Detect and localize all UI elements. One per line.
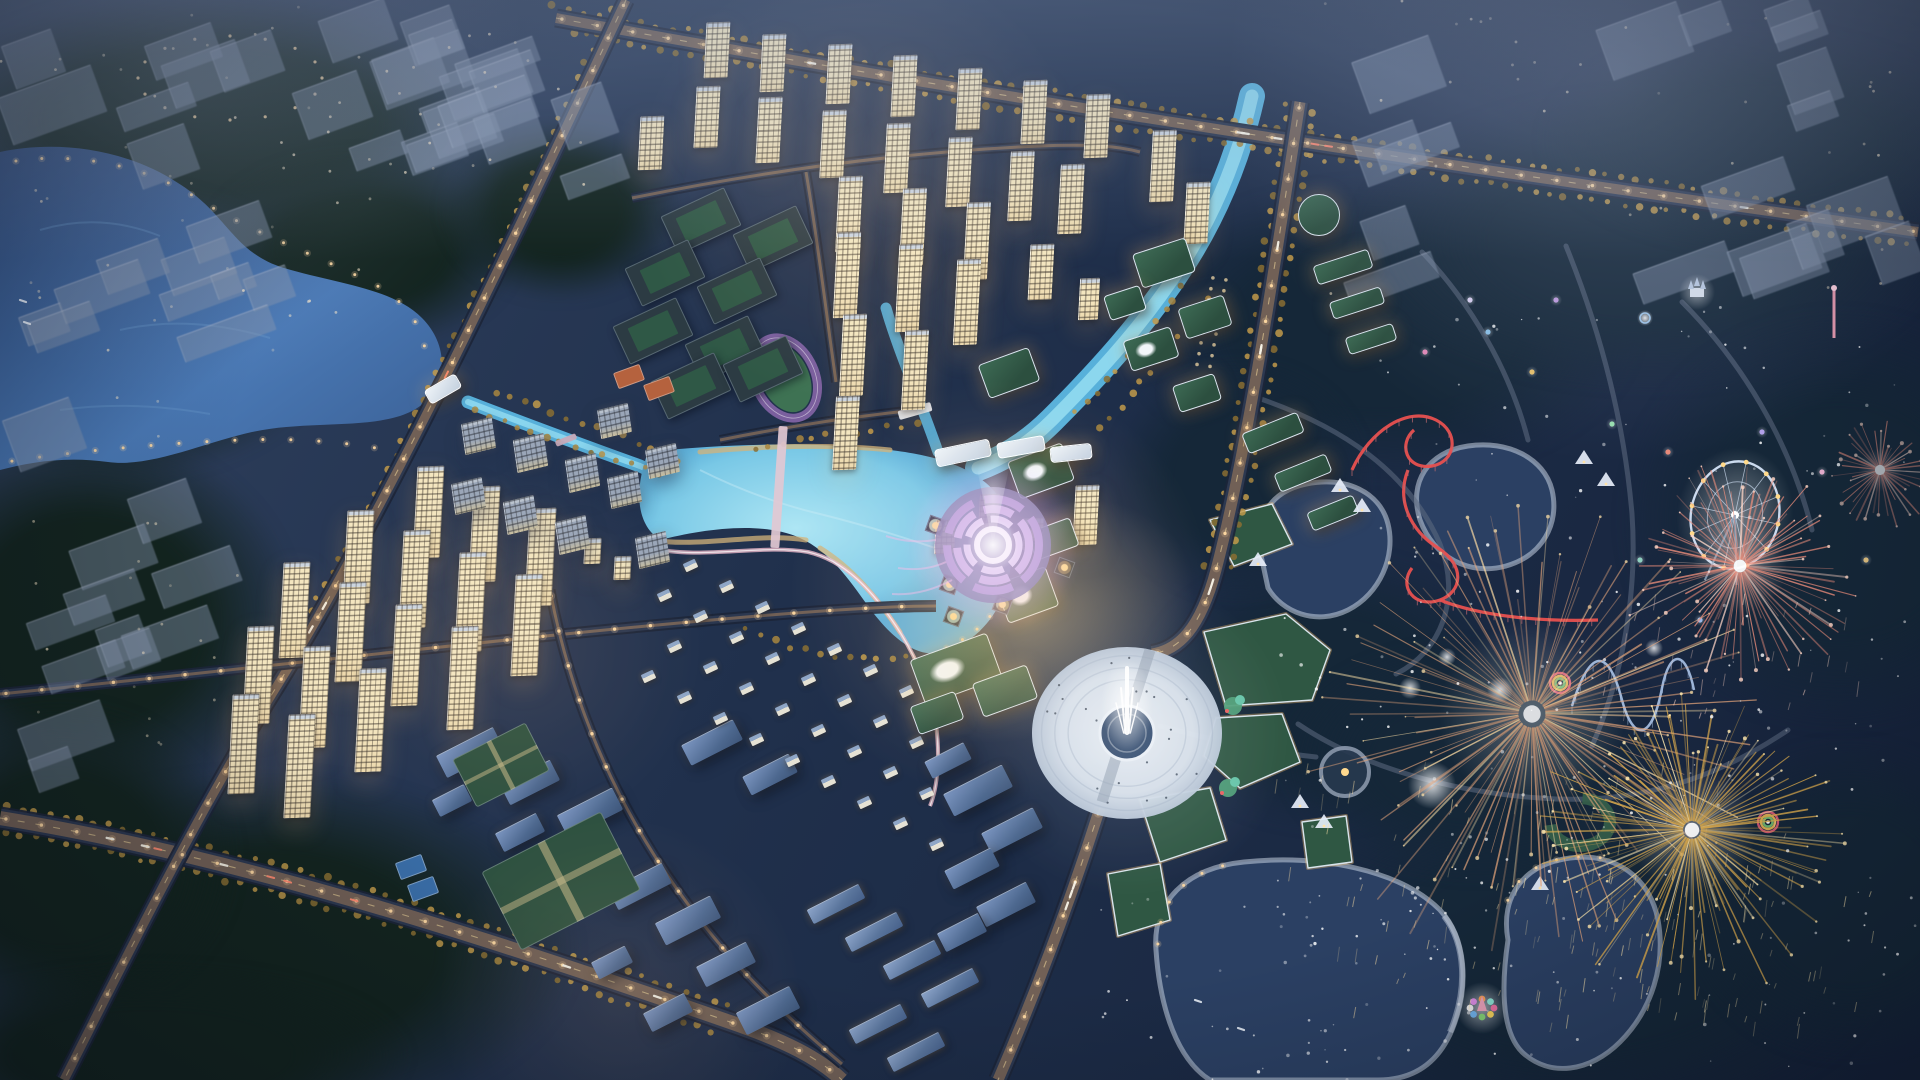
sparkle xyxy=(1603,765,1605,767)
firework-spark xyxy=(1662,531,1665,534)
firework-spark xyxy=(1546,515,1550,519)
sparkle xyxy=(1432,913,1433,914)
sparkle xyxy=(1432,552,1434,554)
firework-rain xyxy=(1606,925,1608,931)
sparkle xyxy=(1914,924,1917,927)
sparkle xyxy=(1444,958,1446,960)
firework-spark xyxy=(1625,560,1628,563)
firework-spark xyxy=(1468,547,1470,549)
sparkle xyxy=(1602,443,1605,446)
distant-light xyxy=(146,734,149,737)
distant-light xyxy=(385,70,388,73)
topiary-accent xyxy=(1225,709,1229,713)
firework-spark xyxy=(1824,781,1827,784)
firework-rain xyxy=(1798,654,1800,666)
firework-rain xyxy=(1659,998,1661,1013)
firework-rain xyxy=(1791,876,1793,889)
firework-rain xyxy=(1496,883,1498,890)
sparkle xyxy=(1361,718,1363,720)
firework-spark xyxy=(1542,830,1546,834)
firework-rain xyxy=(1640,934,1642,947)
firework-rain xyxy=(1397,979,1399,984)
firework-rain xyxy=(1714,678,1716,684)
sparkle xyxy=(1664,484,1667,487)
firework-spark xyxy=(1713,709,1717,713)
distant-light xyxy=(107,349,110,352)
firework-spark xyxy=(1606,880,1609,883)
sparkle xyxy=(1545,415,1548,418)
firework-spark xyxy=(1743,736,1747,740)
sparkle xyxy=(1315,687,1318,690)
sparkle xyxy=(1475,479,1477,481)
distant-light xyxy=(170,305,173,308)
sparkle xyxy=(1903,620,1906,623)
sparkle xyxy=(1761,653,1765,657)
firework-rain xyxy=(1354,1007,1356,1018)
sparkle xyxy=(1321,928,1323,930)
firework-rain xyxy=(1386,921,1388,932)
sparkle xyxy=(1309,901,1311,903)
firework-spark xyxy=(1896,525,1898,527)
sparkle xyxy=(1680,720,1682,722)
firework-spark xyxy=(1552,810,1554,812)
sparkle xyxy=(1449,813,1450,814)
firework-rain xyxy=(1613,967,1615,976)
firework-spark xyxy=(1555,851,1558,854)
firework-spark xyxy=(1806,846,1808,848)
distant-light xyxy=(1827,286,1830,289)
sparkle xyxy=(1603,782,1605,784)
firework-core xyxy=(1734,560,1747,573)
firework-rain xyxy=(1664,912,1666,922)
boat xyxy=(1195,1000,1201,1002)
sparkle xyxy=(1546,661,1548,663)
distant-light xyxy=(1515,41,1518,44)
sparkle xyxy=(1536,811,1539,814)
sparkle xyxy=(1454,868,1456,870)
distant-light xyxy=(199,639,202,642)
firework-spark xyxy=(1815,774,1817,776)
sparkle xyxy=(1520,616,1522,618)
sparkle xyxy=(1619,977,1621,979)
firework-spark xyxy=(1756,773,1759,776)
plaza-people xyxy=(1128,657,1130,659)
sparkle xyxy=(1562,917,1565,920)
distant-light xyxy=(412,66,415,69)
sparkle xyxy=(1458,384,1460,386)
sparkle xyxy=(1479,591,1481,593)
sparkle xyxy=(1728,774,1731,777)
firework-spark xyxy=(1588,925,1592,929)
sparkle xyxy=(1537,317,1539,319)
amusement-ride xyxy=(1529,369,1534,374)
sparkle xyxy=(1486,543,1489,546)
firework-rain xyxy=(1596,949,1598,957)
firework-rain xyxy=(1533,937,1535,949)
fountain-glow xyxy=(1101,659,1153,751)
sparkle xyxy=(1709,330,1712,333)
sparkle xyxy=(1501,750,1505,754)
sparkle xyxy=(1451,833,1454,836)
amusement-ride xyxy=(1819,469,1824,474)
firework-rain xyxy=(1592,866,1594,883)
plaza-people xyxy=(1176,773,1178,775)
firework-spark xyxy=(1405,716,1407,718)
firework-spark xyxy=(1720,763,1722,765)
sparkle xyxy=(1509,892,1511,894)
sparkle xyxy=(1344,1049,1346,1051)
tent-light xyxy=(1339,489,1342,492)
sparkle xyxy=(1404,953,1406,955)
firework-spark xyxy=(1608,778,1610,780)
tent-light xyxy=(1299,805,1302,808)
firework-ray xyxy=(1740,573,1741,680)
distant-light xyxy=(1533,61,1536,64)
sparkle xyxy=(1579,489,1582,492)
firework-rain xyxy=(1451,799,1453,813)
firework-rain xyxy=(1516,882,1518,895)
firework-spark xyxy=(1688,477,1690,479)
firework-spark xyxy=(1850,480,1852,482)
sparkle xyxy=(1632,663,1634,665)
sparkle xyxy=(1428,644,1430,646)
firework-spark xyxy=(1664,611,1668,615)
firework-spark xyxy=(1646,933,1649,936)
firework-rain xyxy=(1745,1016,1747,1022)
firework-spark xyxy=(1622,741,1625,744)
plaza-people xyxy=(1110,662,1112,664)
tent-light xyxy=(1323,825,1326,828)
sparkle xyxy=(1611,987,1613,989)
sparkle xyxy=(1687,335,1689,337)
distant-light xyxy=(1877,154,1880,157)
distant-light xyxy=(181,219,184,222)
carousel-candy-light xyxy=(1470,1011,1477,1018)
sparkle xyxy=(1485,831,1488,834)
distant-light xyxy=(358,56,361,59)
firework-rain xyxy=(1820,967,1822,979)
amusement-ride xyxy=(1485,329,1490,334)
distant-light xyxy=(472,164,475,167)
firework-spark xyxy=(1559,553,1561,555)
sparkle xyxy=(1858,892,1859,893)
sparkle xyxy=(1465,877,1467,879)
distant-light xyxy=(30,281,33,284)
distant-light xyxy=(1828,151,1831,154)
firework-rain xyxy=(1810,672,1812,682)
sparkle xyxy=(1277,880,1279,882)
sparkle xyxy=(1426,1007,1428,1009)
firework-rain xyxy=(1696,930,1698,940)
firework-spark xyxy=(1805,485,1808,488)
plaza-people xyxy=(1195,773,1197,775)
distant-light xyxy=(124,146,127,149)
distant-light xyxy=(1543,110,1546,113)
distant-light xyxy=(448,46,451,49)
firework-rain xyxy=(1498,962,1500,970)
distant-light xyxy=(156,400,159,403)
firework-spark xyxy=(1843,841,1847,845)
firework-spark xyxy=(1790,953,1793,956)
distant-light xyxy=(327,131,330,134)
distant-light xyxy=(37,290,40,293)
firework-spark xyxy=(1475,856,1479,860)
firework-spark xyxy=(1689,906,1693,910)
firework-spark xyxy=(1430,751,1433,754)
firework-spark xyxy=(1707,746,1709,748)
firework-spark xyxy=(1634,737,1637,740)
firework-rain xyxy=(1587,903,1589,910)
sparkle xyxy=(1669,781,1672,784)
sparkle xyxy=(1884,946,1886,948)
firework-spark xyxy=(1563,880,1566,883)
firework-rain xyxy=(1321,794,1323,811)
firework-spark xyxy=(1854,454,1857,457)
distant-light xyxy=(271,27,274,30)
sparkle xyxy=(1433,945,1436,948)
sparkle xyxy=(1763,367,1765,369)
firework-spark xyxy=(1802,638,1805,641)
sparkle xyxy=(1847,939,1849,941)
distant-light xyxy=(307,106,310,109)
sparkle xyxy=(1333,1024,1334,1025)
sparkle xyxy=(1713,621,1715,623)
firework-spark xyxy=(1695,599,1699,603)
sparkle xyxy=(1457,682,1460,685)
firework-spark xyxy=(1657,616,1660,619)
firework-rain xyxy=(1803,690,1805,695)
firework-spark xyxy=(1669,961,1673,965)
firework-rain xyxy=(1761,933,1763,939)
firework-spark xyxy=(1694,634,1697,637)
distant-light xyxy=(120,68,123,71)
firework-spark xyxy=(1752,916,1755,919)
firework-spark xyxy=(1722,485,1724,487)
sparkle xyxy=(1284,617,1286,619)
firework-spark xyxy=(1877,513,1881,517)
sparkle xyxy=(1310,944,1313,947)
firework-spark xyxy=(1329,671,1331,673)
plaza-people xyxy=(1096,787,1098,789)
plaza-people xyxy=(1146,761,1148,763)
sparkle xyxy=(1409,910,1411,912)
distant-light xyxy=(1731,162,1734,165)
firework-spark xyxy=(1451,866,1453,868)
tent-light xyxy=(1361,509,1364,512)
sparkle xyxy=(1782,901,1785,904)
firework-rain xyxy=(1628,938,1630,950)
distant-light xyxy=(213,656,216,659)
distant-light xyxy=(280,141,283,144)
firework-spark xyxy=(1704,668,1708,672)
sparkle xyxy=(1850,1062,1853,1065)
sparkle xyxy=(1731,779,1733,781)
firework-spark xyxy=(1841,833,1843,835)
firework-spark xyxy=(1849,434,1851,436)
sparkle xyxy=(1590,1064,1592,1066)
sparkle xyxy=(1759,442,1762,445)
firework-rain xyxy=(1538,936,1540,942)
sparkle xyxy=(1447,978,1450,981)
firework-rain xyxy=(1855,1002,1857,1012)
firework-rain xyxy=(1713,690,1715,696)
distant-light xyxy=(190,182,193,185)
sparkle xyxy=(1516,590,1519,593)
firework-spark xyxy=(1704,638,1707,641)
sparkle xyxy=(1530,1053,1533,1056)
distant-light xyxy=(432,167,435,170)
firework-rain xyxy=(1337,796,1339,808)
sparkle xyxy=(1881,658,1883,660)
firework-rain xyxy=(1845,662,1847,673)
distant-light xyxy=(292,153,295,156)
distant-light xyxy=(1879,282,1882,285)
firework-spark xyxy=(1439,552,1442,555)
distant-light xyxy=(129,577,132,580)
sparkle xyxy=(1858,346,1860,348)
firework-spark xyxy=(1904,488,1907,491)
firework-rain xyxy=(1572,946,1574,954)
firework-spark xyxy=(1780,769,1782,771)
sparkle xyxy=(1855,723,1856,724)
firework-spark xyxy=(1705,960,1707,962)
distant-light xyxy=(1629,213,1632,216)
sparkle xyxy=(1578,692,1580,694)
distant-light xyxy=(1869,85,1872,88)
firework-spark xyxy=(1564,847,1568,851)
firework-spark xyxy=(1690,535,1693,538)
distant-light xyxy=(1727,23,1730,26)
sparkle xyxy=(1823,435,1825,437)
firework-spark xyxy=(1466,516,1470,520)
distant-light xyxy=(190,14,193,17)
sparkle xyxy=(1785,729,1787,731)
firework-spark xyxy=(1728,730,1731,733)
sparkle xyxy=(1313,942,1316,945)
sparkle xyxy=(1869,725,1872,728)
firework-rain xyxy=(1361,884,1363,891)
distant-light xyxy=(437,123,440,126)
sparkle xyxy=(1710,715,1713,718)
distant-light xyxy=(169,175,172,178)
plaza-people xyxy=(1118,782,1120,784)
distant-light xyxy=(272,349,275,352)
sparkle xyxy=(1380,655,1383,658)
distant-light xyxy=(1324,2,1327,5)
sparkle xyxy=(1865,404,1868,407)
boat xyxy=(24,322,30,324)
distant-light xyxy=(1455,23,1458,26)
sparkle xyxy=(1414,556,1416,558)
sparkle xyxy=(1503,406,1506,409)
sparkle xyxy=(1488,681,1490,683)
sparkle xyxy=(1848,391,1850,393)
firework-spark xyxy=(1825,599,1827,601)
firework-spark xyxy=(1697,750,1700,753)
sparkle xyxy=(1262,1068,1264,1070)
amusement-ride xyxy=(1467,297,1472,302)
distant-light xyxy=(46,648,49,651)
firework-rain xyxy=(1546,894,1548,904)
firework-spark xyxy=(1763,753,1765,755)
firework-spark xyxy=(1700,465,1702,467)
sparkle xyxy=(1677,914,1679,916)
firework-rain xyxy=(1675,1012,1677,1020)
sparkle xyxy=(1625,424,1626,425)
firework-rain xyxy=(1772,651,1774,661)
firework-spark xyxy=(1860,423,1863,426)
sparkle xyxy=(1601,601,1603,603)
sparkle xyxy=(1146,898,1149,901)
distant-light xyxy=(494,85,497,88)
sparkle xyxy=(1710,1060,1711,1061)
firework-rain xyxy=(1353,897,1355,907)
sparkle xyxy=(1764,1004,1766,1006)
distant-light xyxy=(282,167,285,170)
firework-rain xyxy=(1641,984,1643,999)
sparkle xyxy=(1573,776,1576,779)
distant-light xyxy=(1744,101,1747,104)
sparkle xyxy=(1709,994,1711,996)
sparkle xyxy=(1411,891,1415,895)
sparkle xyxy=(1277,906,1279,908)
distant-light xyxy=(335,311,338,314)
firework-rain xyxy=(1844,896,1846,907)
firework-rain xyxy=(1403,973,1405,978)
sparkle xyxy=(1257,1070,1260,1073)
firework-spark xyxy=(1403,845,1405,847)
firework-rain xyxy=(1348,792,1350,804)
distant-light xyxy=(389,163,392,166)
sparkle xyxy=(1531,756,1534,759)
firework-rain xyxy=(1703,999,1705,1007)
sparkle xyxy=(1413,634,1416,637)
plaza-people xyxy=(1186,698,1188,700)
firework-rain xyxy=(1337,947,1339,962)
distant-light xyxy=(38,296,41,299)
distant-light xyxy=(226,267,229,270)
sparkle xyxy=(1894,384,1896,386)
sparkle xyxy=(1555,708,1558,711)
sparkle xyxy=(1283,913,1286,916)
plaza-people xyxy=(1146,690,1148,692)
sparkle xyxy=(1600,716,1602,718)
firework-rain xyxy=(1788,702,1790,710)
sparkle xyxy=(1771,777,1775,781)
sparkle xyxy=(1596,319,1598,321)
firework-spark xyxy=(1757,740,1759,742)
sparkle xyxy=(1102,1016,1105,1019)
distant-light xyxy=(1659,207,1662,210)
sparkle xyxy=(1603,658,1606,661)
sparkle xyxy=(1770,937,1772,939)
firework-rain xyxy=(1753,1022,1755,1036)
distant-light xyxy=(1863,143,1866,146)
sparkle xyxy=(1429,957,1432,960)
firework-spark xyxy=(1741,485,1745,489)
sparkle xyxy=(1506,858,1509,861)
firework-rain xyxy=(1622,900,1624,911)
firework-spark xyxy=(1788,668,1790,670)
sparkle xyxy=(1630,811,1633,814)
firework-rain xyxy=(1403,885,1405,897)
firework-spark xyxy=(1815,920,1817,922)
sparkle xyxy=(1470,603,1472,605)
sparkle xyxy=(1420,904,1422,906)
sparkle xyxy=(1764,1042,1766,1044)
plaza-people xyxy=(1095,719,1097,721)
firework-rain xyxy=(1707,995,1709,1010)
